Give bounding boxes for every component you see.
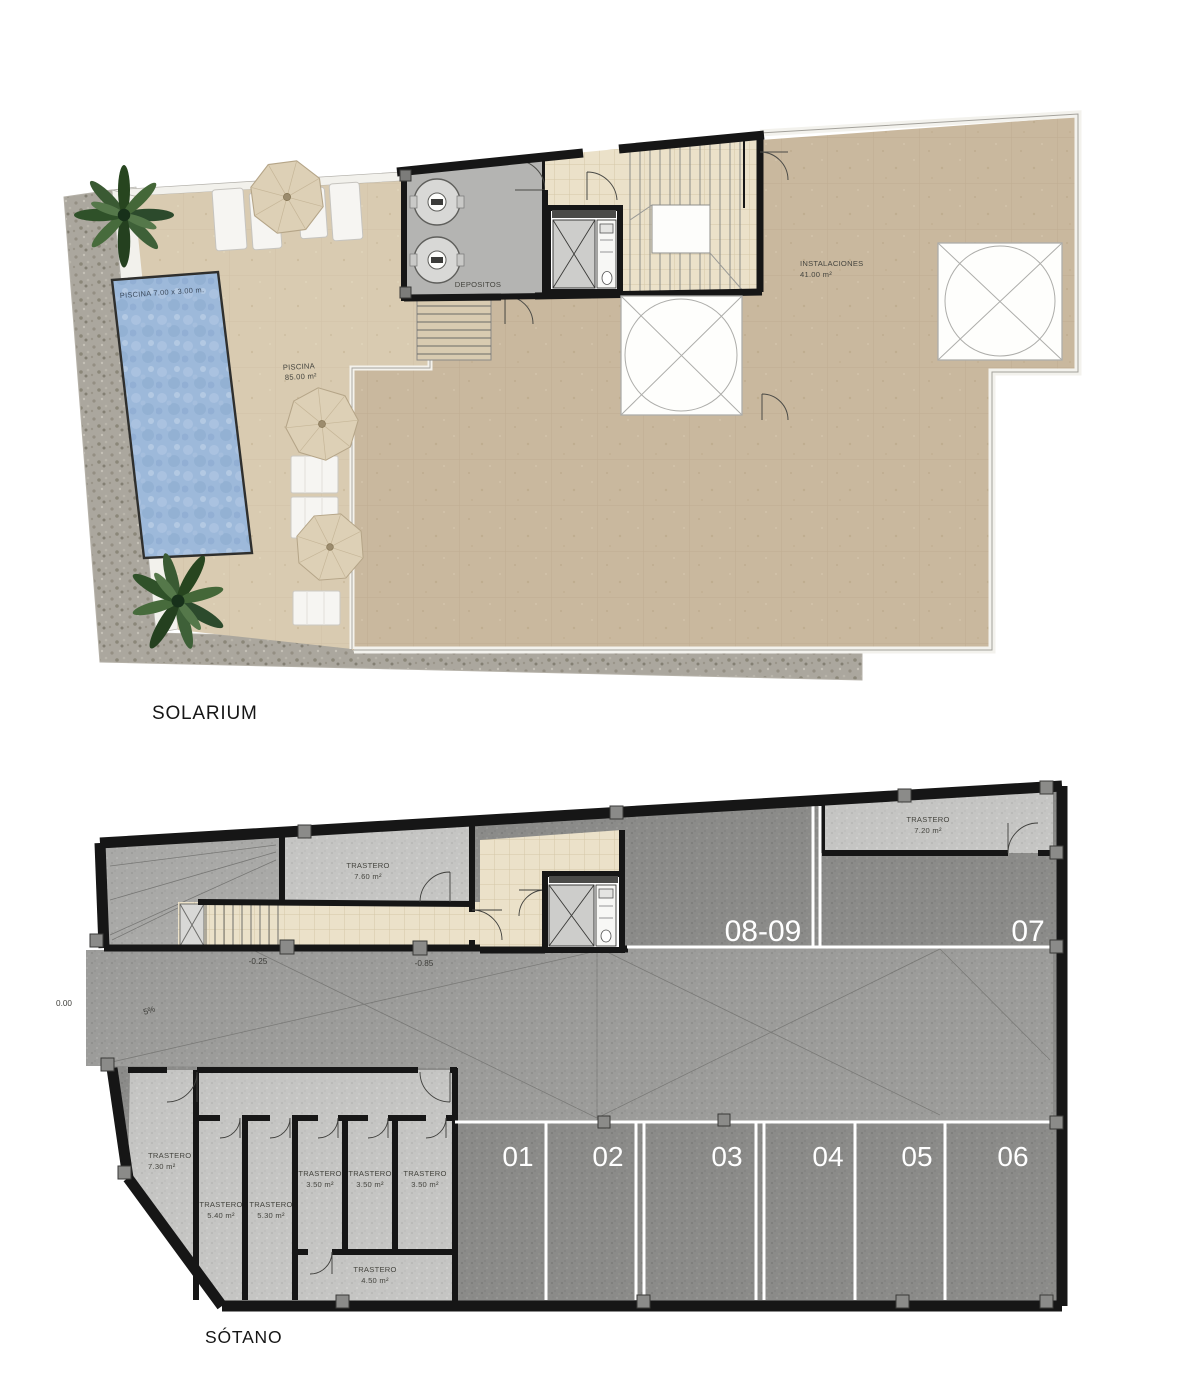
trastero-350b-label: TRASTERO [348, 1169, 391, 1178]
trastero-760-label: TRASTERO [346, 861, 389, 870]
trastero-350a-area: 3.50 m² [306, 1180, 334, 1189]
trastero-350b-area: 3.50 m² [356, 1180, 384, 1189]
elevator-basement [545, 874, 622, 950]
solarium-plan: PISCINA 7.00 x 3.00 m. [64, 114, 1078, 724]
trastero-720-area: 7.20 m² [914, 826, 942, 835]
trastero-530-area: 5.30 m² [257, 1211, 285, 1220]
piscina-area-value: 85.00 m² [285, 371, 318, 382]
parking-spot-06: 06 [997, 1141, 1028, 1172]
sotano-plan: TRASTERO 7.60 m² TRASTERO 7.20 m² TRASTE… [56, 781, 1063, 1347]
instalaciones-area: 41.00 m² [800, 270, 832, 279]
trastero-530-label: TRASTERO [249, 1200, 292, 1209]
trastero-540-area: 5.40 m² [207, 1211, 235, 1220]
trastero-350c-label: TRASTERO [403, 1169, 446, 1178]
parking-spot-04: 04 [812, 1141, 843, 1172]
floorplan-drawing: PISCINA 7.00 x 3.00 m. [0, 0, 1182, 1386]
trastero-760-area: 7.60 m² [354, 872, 382, 881]
instalaciones-label: INSTALACIONES [800, 259, 863, 268]
piscina-area-label: PISCINA [283, 361, 316, 372]
trastero-730-label: TRASTERO [148, 1151, 191, 1160]
terrace-stair [417, 298, 491, 360]
sotano-title: SÓTANO [205, 1326, 282, 1347]
parking-spot-02: 02 [592, 1141, 623, 1172]
parking-spot-08-09: 08-09 [725, 915, 802, 948]
level-street: 0.00 [56, 999, 72, 1008]
trastero-350a-label: TRASTERO [298, 1169, 341, 1178]
parking-spot-05: 05 [901, 1141, 932, 1172]
courtyard-void-right [938, 243, 1062, 360]
trastero-450-area: 4.50 m² [361, 1276, 389, 1285]
parking-spot-03: 03 [711, 1141, 742, 1172]
courtyard-void-left [621, 296, 742, 415]
depositos-label: DEPOSITOS [455, 280, 501, 289]
storage-block [128, 1070, 455, 1302]
trastero-350c-area: 3.50 m² [411, 1180, 439, 1189]
trastero-450-label: TRASTERO [353, 1265, 396, 1274]
trastero-540-label: TRASTERO [199, 1200, 242, 1209]
level-aisle-upper: -0.25 [249, 957, 268, 966]
elevator-solarium [548, 208, 620, 292]
trastero-730-area: 7.30 m² [148, 1162, 176, 1171]
trastero-720-label: TRASTERO [906, 815, 949, 824]
pilaster [400, 287, 411, 298]
pilaster [400, 170, 411, 181]
basement-corridor [178, 902, 480, 948]
parking-spot-07: 07 [1011, 915, 1044, 948]
solarium-title: SOLARIUM [152, 703, 258, 724]
floorplan-sheet: PISCINA 7.00 x 3.00 m. [0, 0, 1182, 1386]
parking-spot-01: 01 [502, 1141, 533, 1172]
level-aisle-lower: -0.85 [415, 959, 434, 968]
